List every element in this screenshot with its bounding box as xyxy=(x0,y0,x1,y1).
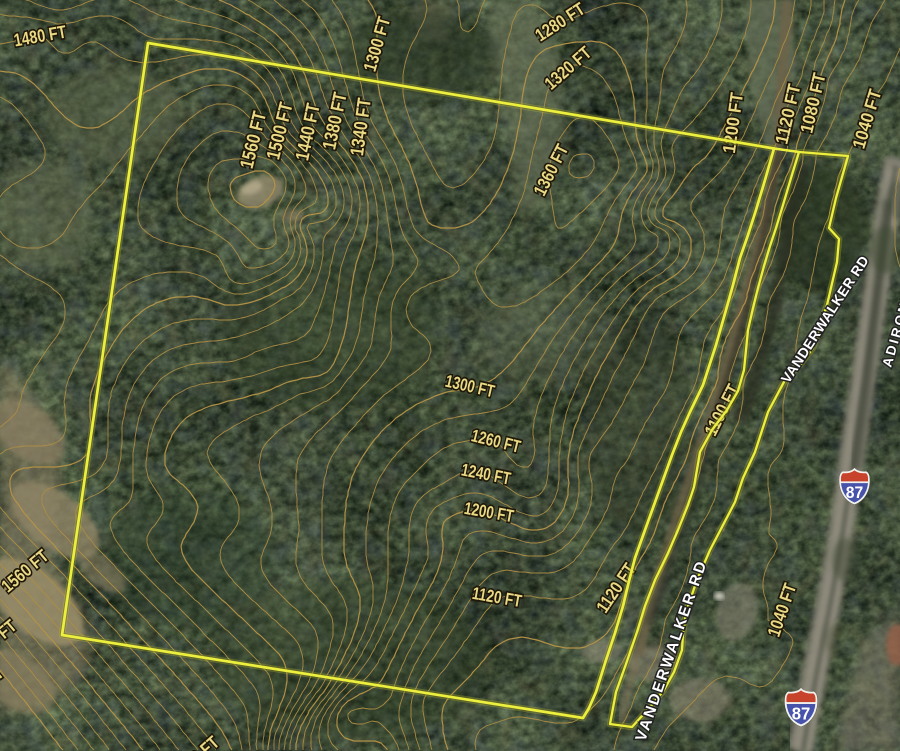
svg-text:87: 87 xyxy=(792,703,811,724)
svg-text:87: 87 xyxy=(846,483,863,502)
